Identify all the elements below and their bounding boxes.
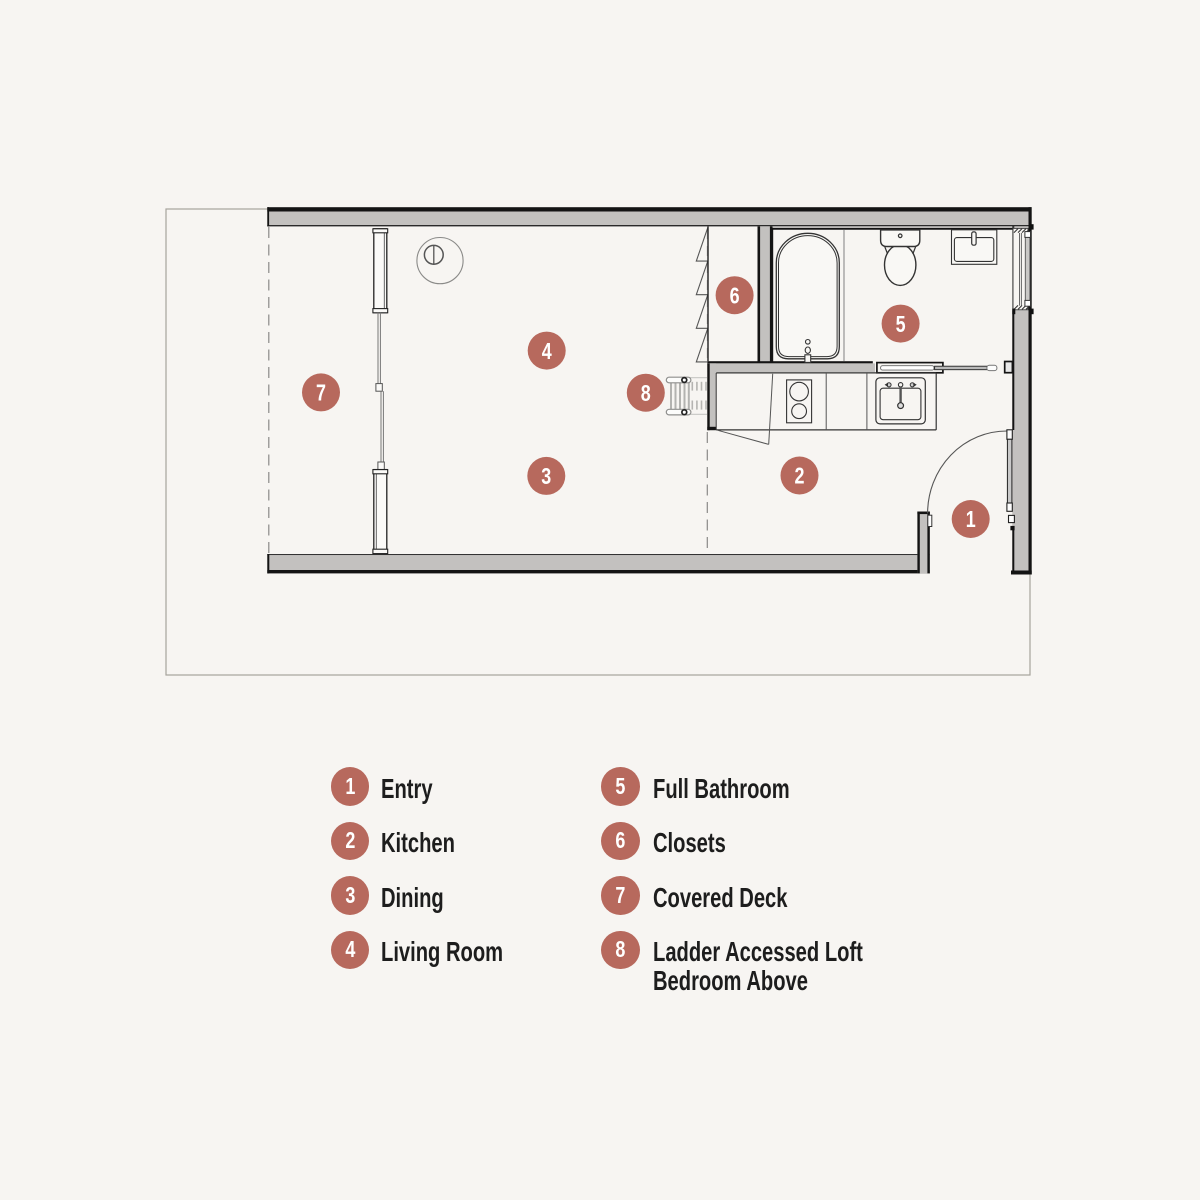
svg-text:4: 4 — [542, 339, 552, 365]
svg-text:7: 7 — [316, 381, 326, 407]
svg-text:8: 8 — [641, 381, 651, 407]
svg-text:2: 2 — [795, 464, 805, 490]
svg-text:1: 1 — [966, 507, 976, 533]
svg-text:3: 3 — [541, 464, 551, 490]
svg-text:6: 6 — [730, 283, 740, 309]
svg-text:5: 5 — [896, 312, 906, 338]
